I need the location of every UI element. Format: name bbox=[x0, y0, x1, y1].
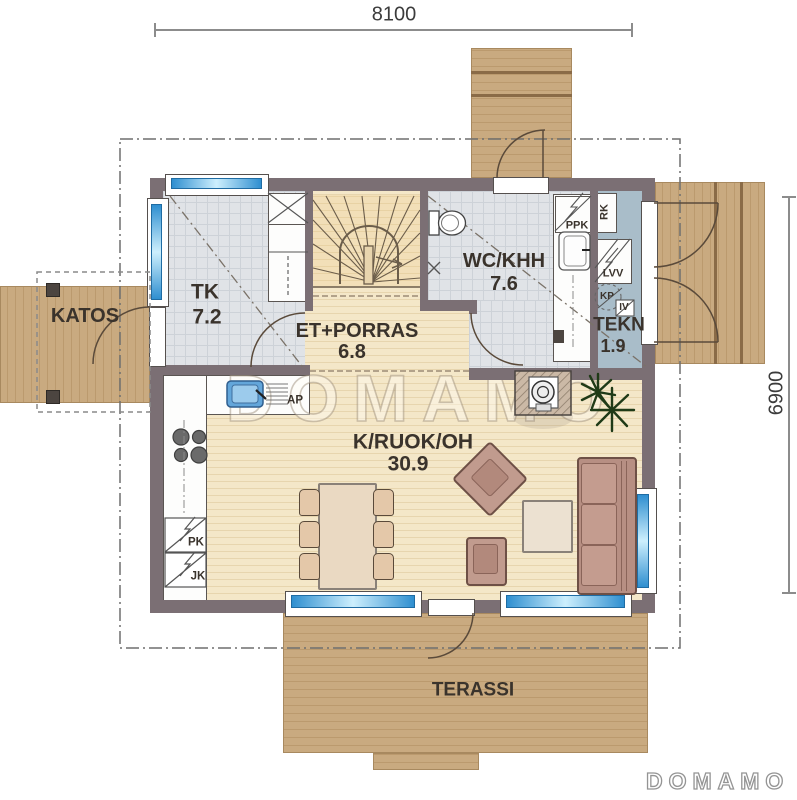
room-label-wc: WC/KHH bbox=[463, 251, 545, 271]
dining-chair bbox=[299, 489, 320, 516]
katos-deck bbox=[0, 286, 150, 403]
porch-step-edge bbox=[471, 94, 572, 97]
room-area-tekn: 1.9 bbox=[600, 337, 625, 355]
domamo-logo: DOMAMO bbox=[646, 768, 789, 795]
deck-board-edge bbox=[714, 182, 717, 364]
appliance-label-lvv: LVV bbox=[603, 269, 624, 280]
entry-door bbox=[493, 177, 549, 194]
floor-plan: DOMAMO bbox=[0, 0, 797, 800]
appliance-label-ppk: PPK bbox=[566, 221, 589, 232]
tk-closet bbox=[268, 224, 310, 302]
window-glass bbox=[637, 494, 649, 588]
appliance-label-iv: IV bbox=[619, 303, 628, 313]
appliance-label-ap: AP bbox=[287, 395, 303, 407]
terrace-step bbox=[373, 753, 479, 770]
wall-wc-door-post bbox=[469, 300, 477, 314]
window-glass bbox=[151, 204, 162, 300]
wall-wc-tekn bbox=[590, 191, 598, 368]
kitchen-counter-left bbox=[163, 375, 207, 602]
wall-tk-kitchen bbox=[150, 365, 310, 375]
room-label-tk: TK bbox=[191, 282, 219, 303]
window-glass bbox=[171, 178, 262, 189]
ottoman bbox=[466, 537, 507, 586]
katos-post bbox=[46, 283, 60, 297]
entry-porch-deck bbox=[471, 48, 572, 178]
wall-living-top bbox=[469, 368, 642, 380]
room-area-living: 30.9 bbox=[388, 454, 429, 475]
katos-door bbox=[149, 307, 166, 367]
terrace-door bbox=[428, 599, 475, 616]
appliance-label-rk: RK bbox=[600, 204, 611, 220]
dining-table bbox=[318, 483, 377, 590]
sofa bbox=[577, 457, 637, 595]
dining-chair bbox=[373, 553, 394, 580]
room-area-tk: 7.2 bbox=[192, 307, 221, 328]
dimension-top: 8100 bbox=[372, 4, 417, 27]
katos-post bbox=[46, 390, 60, 404]
dining-chair bbox=[373, 489, 394, 516]
dining-chair bbox=[373, 521, 394, 548]
right-deck bbox=[655, 182, 765, 364]
window-glass bbox=[506, 595, 625, 608]
deck-board-edge bbox=[740, 182, 743, 364]
tk-closet-x bbox=[268, 193, 310, 225]
room-area-et: 6.8 bbox=[338, 342, 366, 362]
appliance-label-kp: KP bbox=[600, 292, 614, 302]
coffee-table bbox=[522, 500, 573, 553]
room-area-wc: 7.6 bbox=[490, 274, 518, 294]
room-label-et: ET+PORRAS bbox=[296, 321, 419, 341]
porch-step-edge bbox=[471, 71, 572, 74]
room-label-terassi: TERASSI bbox=[432, 681, 514, 700]
wall-et-wc bbox=[420, 191, 428, 303]
dining-chair bbox=[299, 521, 320, 548]
wall-tk-et bbox=[305, 191, 313, 311]
appliance-label-pk: PK bbox=[188, 537, 204, 549]
room-label-katos: KATOS bbox=[51, 306, 119, 326]
appliance-label-jk: JK bbox=[191, 571, 206, 583]
room-label-living: K/RUOK/OH bbox=[353, 432, 473, 453]
window-glass bbox=[291, 595, 415, 608]
dimension-right: 6900 bbox=[766, 371, 789, 416]
dining-chair bbox=[299, 553, 320, 580]
room-label-tekn: TEKN bbox=[593, 316, 645, 335]
stair-floor bbox=[313, 195, 420, 287]
